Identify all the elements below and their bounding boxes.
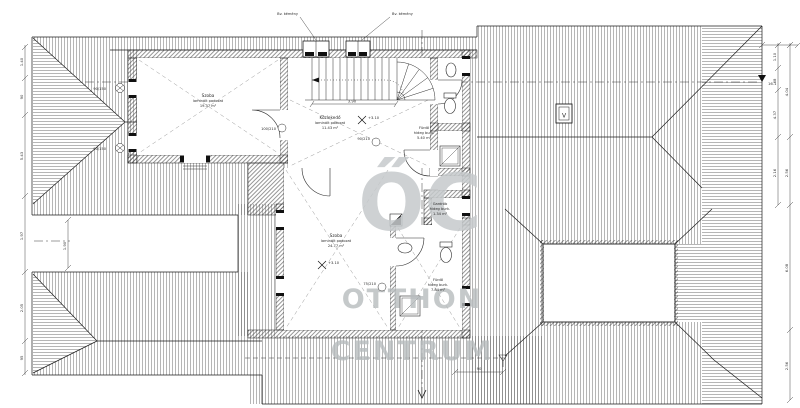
stair-dim: 3.90 — [348, 99, 357, 104]
dim: 1.97 — [19, 231, 24, 240]
furdo1-name: Fürdő — [419, 126, 429, 130]
watermark-word2: CENTRUM — [331, 336, 494, 367]
furdo2-name: Fürdő — [433, 278, 443, 282]
dim: 6.08 — [784, 263, 789, 272]
dim: 95 — [19, 355, 24, 360]
dim: 90 — [19, 94, 24, 99]
dim: 1.40 — [19, 57, 24, 66]
watermark-word1: OTTHON — [342, 284, 483, 315]
toilet-icon — [445, 99, 456, 114]
room-kozlekedo — [288, 58, 430, 168]
roof-mid-strip — [137, 163, 248, 215]
door-tag-3: 75/210 — [363, 282, 376, 286]
furdo2-floor: hideg burk. — [428, 283, 448, 287]
gardrob-name: Gardrób — [433, 202, 448, 206]
dim: 2.16 — [772, 168, 777, 177]
dim: 2.56 — [784, 168, 789, 177]
gardrob-area: 1.34 m² — [433, 212, 448, 216]
dim: 4.37 — [772, 110, 777, 119]
watermark-monogram: ŐC — [358, 157, 482, 249]
dim: 1.10 — [772, 52, 777, 61]
dim: 2.05 — [19, 303, 24, 312]
skylight: V — [556, 104, 572, 123]
furdo1-area: 5.40 m² — [417, 136, 432, 140]
door-tag-1: 100/210 — [261, 127, 277, 131]
floor-plan-canvas: 16.1 — [0, 0, 800, 408]
door-tag-icon — [372, 138, 380, 146]
szoba2-name: Szoba — [330, 233, 343, 238]
level-lower: +3.10 — [328, 261, 340, 265]
dim: 90 — [477, 366, 482, 371]
dim: 68 — [772, 78, 777, 83]
wall-north — [128, 50, 477, 58]
szoba2-area: 24.77 m² — [328, 244, 345, 248]
attic-floor-plan: 16.1 — [0, 0, 800, 408]
roof-right-east-slope — [702, 26, 762, 404]
door-tag-icon — [378, 283, 386, 291]
chimney-label-right: Bv. kémény — [392, 12, 414, 16]
dim: 4.04 — [784, 87, 789, 96]
window-tag-2: 90/150 — [93, 147, 106, 151]
szoba1-floor: laminált padozat — [193, 99, 224, 103]
szoba2-floor: laminált padozat — [321, 239, 352, 243]
furdo2-area: 7.84 m² — [431, 288, 446, 292]
dim: 2.56 — [784, 361, 789, 370]
toilet-icon — [441, 248, 452, 263]
furdo1-floor: hideg burk. — [414, 131, 434, 135]
dim: 1.90 — [62, 241, 67, 250]
gardrob-floor: hideg burk. — [430, 207, 450, 211]
chimney-label-left: Bv. kémény — [277, 12, 299, 16]
kozlekedo-name: Közlekedő — [319, 115, 341, 120]
kozlekedo-floor: laminált padozat — [315, 121, 346, 125]
kozlekedo-area: 11.43 m² — [322, 126, 339, 130]
lower-roof-opening — [543, 244, 675, 322]
szoba1-area: 19.37 m² — [200, 104, 217, 108]
door-tag-icon — [278, 124, 286, 132]
dim: 5.43 — [19, 151, 24, 160]
sink-icon — [446, 63, 456, 77]
door-tag-2: 90/210 — [357, 137, 370, 141]
roof-right-main — [470, 26, 702, 404]
window-tag-1: 90/150 — [93, 87, 106, 91]
level-upper: +3.10 — [368, 116, 380, 120]
szoba1-name: Szoba — [202, 93, 215, 98]
